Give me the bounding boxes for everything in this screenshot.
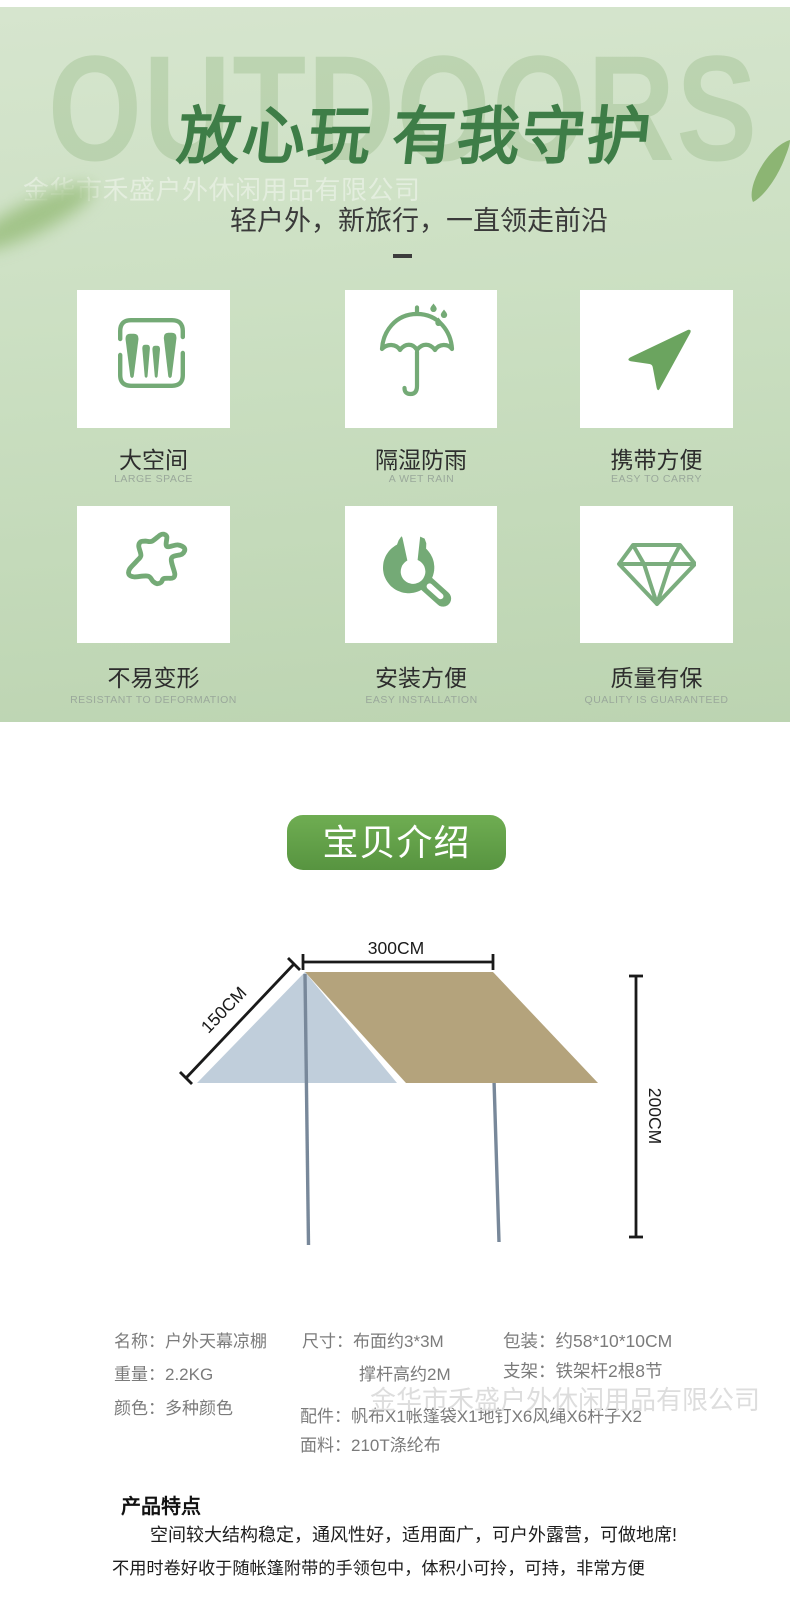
svg-text:150CM: 150CM [197,983,251,1037]
svg-text:300CM: 300CM [368,938,424,958]
svg-text:200CM: 200CM [645,1088,665,1144]
